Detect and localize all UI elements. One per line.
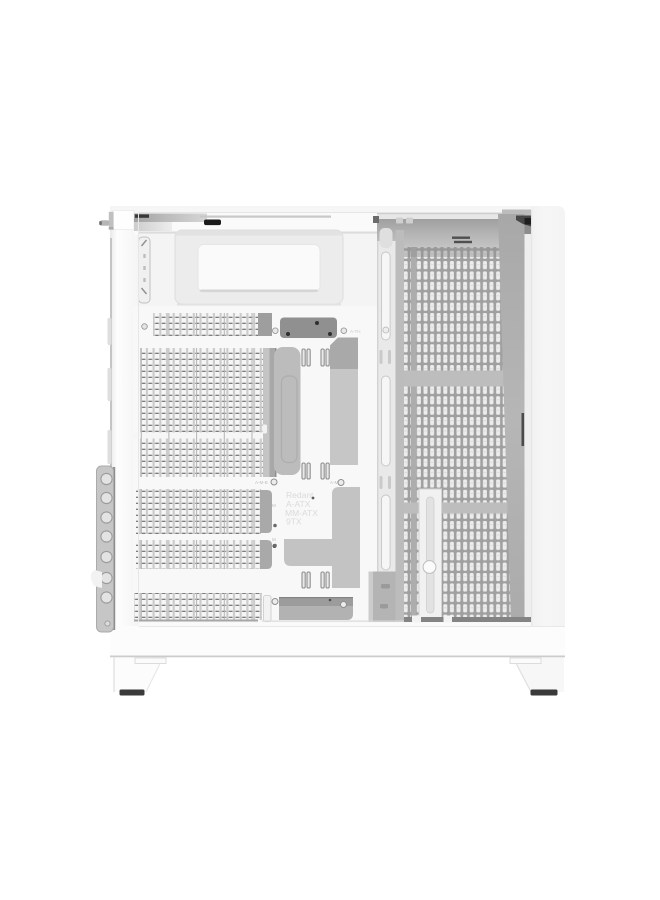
svg-text:A-TH: A-TH [350,329,361,334]
svg-text:9TX: 9TX [286,517,302,527]
svg-text:M: M [272,503,276,508]
svg-text:M: M [272,537,276,542]
svg-text:A-M-B: A-M-B [255,480,268,485]
svg-text:A-M: A-M [330,480,339,485]
